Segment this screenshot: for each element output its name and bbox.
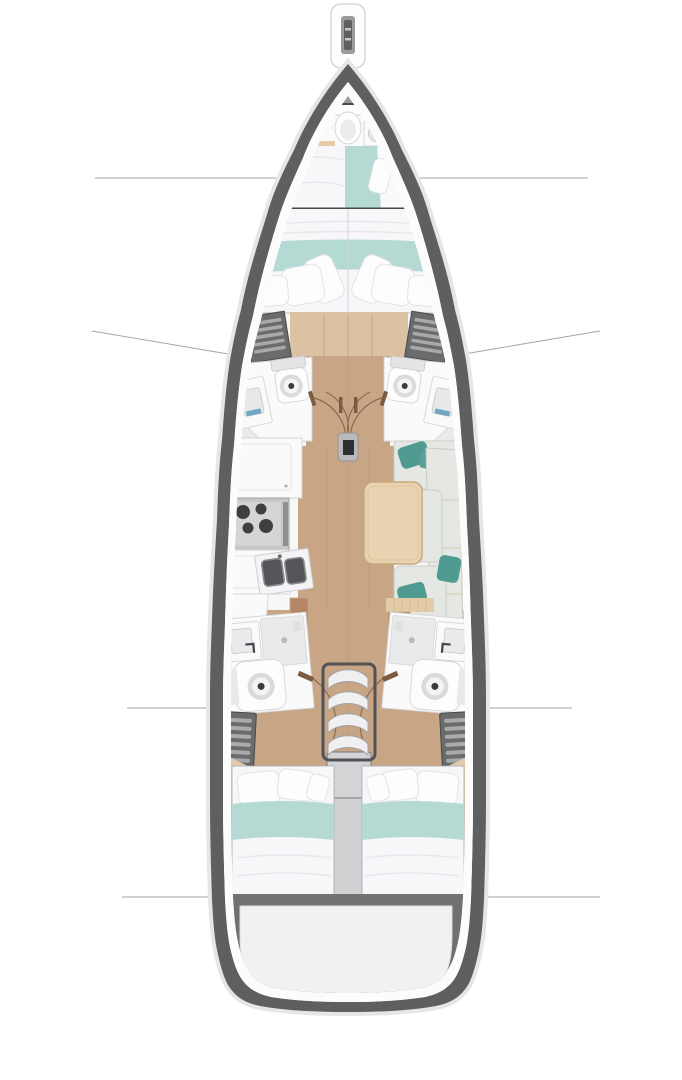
door-leaf <box>339 397 343 413</box>
section-line-midship-starboard <box>458 331 600 355</box>
salon-table <box>364 482 422 564</box>
aft-berth-blanket <box>232 801 334 840</box>
accent-cushion <box>436 554 462 583</box>
yacht-floorplan-canvas: Sailing yacht interior floor plan (top v… <box>0 0 682 1080</box>
section-line-midship-port <box>92 331 234 355</box>
mast-post <box>338 433 358 461</box>
burner <box>259 519 273 533</box>
door-leaf <box>354 397 358 413</box>
sink-basin <box>261 558 284 587</box>
cooktop-knobs <box>283 502 288 546</box>
cabinet-handle <box>285 485 288 488</box>
yacht-floorplan: Sailing yacht interior floor plan (top v… <box>0 0 682 1080</box>
swim-platform <box>240 906 452 996</box>
burner <box>236 505 250 519</box>
sink-basin <box>284 557 306 584</box>
galley-sink <box>254 548 313 595</box>
anchor-roller-icon <box>344 20 352 50</box>
burner <box>256 504 267 515</box>
interior <box>211 68 485 1014</box>
transom-beam <box>224 894 468 906</box>
burner <box>243 523 254 534</box>
pillow <box>236 770 281 806</box>
forward-cabin-sole <box>290 312 408 360</box>
mast-step <box>343 440 354 455</box>
